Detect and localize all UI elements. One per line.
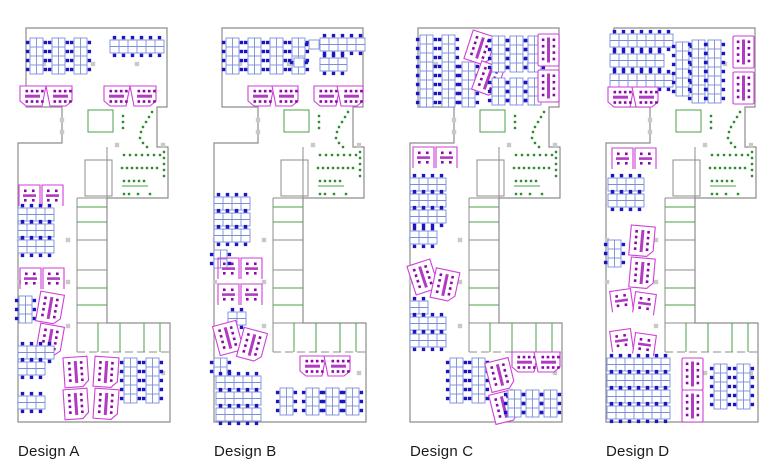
furniture-bv (15, 296, 36, 323)
furniture-ph (20, 86, 46, 106)
furniture-pb (733, 36, 754, 68)
design-label-d: Design D (606, 443, 669, 460)
furniture-ph (248, 86, 274, 106)
furniture-bv (322, 388, 343, 415)
furniture-ph (534, 352, 560, 372)
furniture-pv (63, 356, 89, 388)
furniture-pb (682, 390, 703, 422)
furniture-pb (538, 70, 559, 102)
furniture-ph (314, 86, 340, 106)
furniture-ph (130, 86, 156, 106)
furniture-ph (104, 86, 130, 106)
furniture-ph (46, 86, 72, 106)
furniture-bh (18, 358, 45, 379)
furniture-ph (300, 356, 326, 376)
furniture-ph (632, 87, 658, 107)
furniture-bv (276, 388, 297, 415)
furniture-pv (93, 356, 119, 388)
furniture-pb (733, 72, 754, 104)
furniture-pb (682, 358, 703, 390)
furniture-bv (342, 388, 363, 415)
furniture-bv (604, 240, 625, 267)
floorplan-design-d (600, 24, 764, 428)
design-label-b: Design B (214, 443, 276, 460)
floorplan-design-b (208, 24, 372, 428)
furniture-bh (18, 392, 45, 413)
furniture-pv (629, 257, 656, 289)
furniture-pb (538, 34, 559, 66)
furniture-pv (63, 388, 89, 420)
design-label-c: Design C (410, 443, 473, 460)
floorplan-design-a (12, 24, 176, 428)
furniture-bh (410, 227, 437, 248)
furniture-bh (320, 54, 347, 75)
floorplan-comparison: Design A Design B Design C Design D (0, 0, 771, 469)
furniture-ph (272, 86, 298, 106)
furniture-ph (324, 356, 350, 376)
furniture-ph (337, 86, 363, 106)
design-label-a: Design A (18, 443, 80, 460)
furniture-bv (540, 390, 561, 417)
furniture-bv (302, 388, 323, 415)
furniture-pv (629, 225, 656, 257)
furniture-pv (93, 388, 119, 420)
furniture-ph (608, 87, 634, 107)
floorplan-design-c (404, 24, 568, 428)
